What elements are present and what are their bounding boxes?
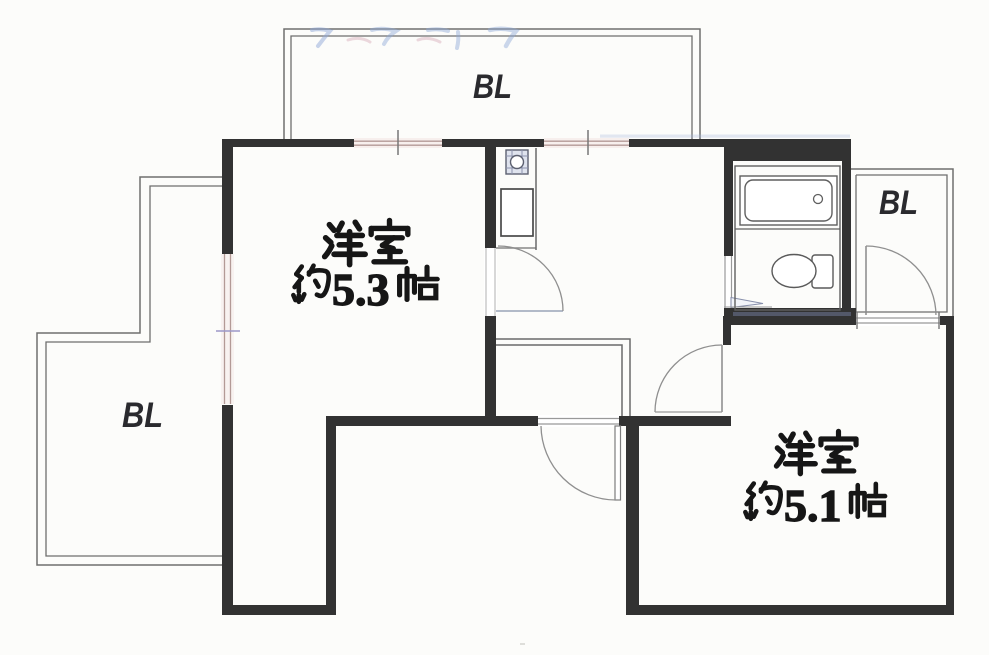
svg-text:5.1: 5.1	[784, 480, 842, 531]
svg-text:5.3: 5.3	[332, 264, 390, 315]
svg-text:BL: BL	[122, 396, 163, 435]
svg-text:BL: BL	[473, 68, 512, 106]
svg-text:BL: BL	[879, 184, 918, 222]
